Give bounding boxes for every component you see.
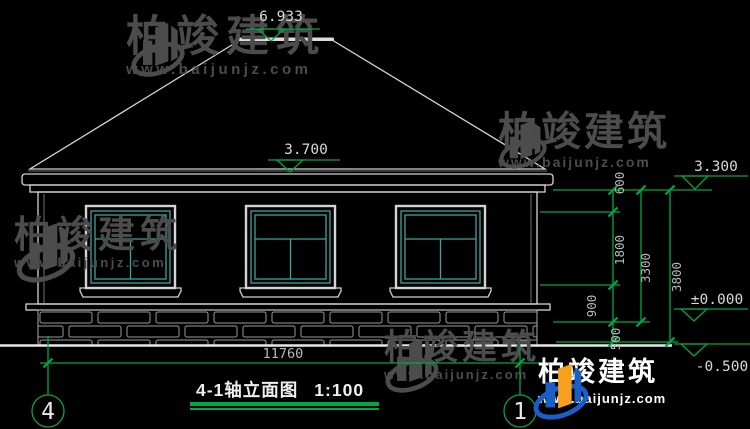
baijun-logo-color-icon (532, 358, 590, 426)
cad-elevation-drawing: 柏竣建筑 www.baijunjz.com 柏竣建筑 www.baijunjz.… (0, 0, 750, 429)
elevation-symbol-ridge (246, 29, 320, 41)
elevation-symbol-eave-top (268, 160, 340, 172)
elevation-value-eave-top: 3.700 (284, 142, 328, 158)
elevation-value-ground: -0.500 (696, 359, 748, 375)
elevation-value-ridge: 6.933 (259, 9, 303, 25)
elevation-value-floor: ±0.000 (691, 292, 743, 308)
elevation-symbol-ground (674, 344, 750, 356)
dim-seg-600: 600 (612, 172, 627, 195)
dimension-chain-lines (40, 190, 670, 363)
axis-number-right: 1 (513, 399, 527, 425)
title-text: 4-1轴立面图 (196, 380, 298, 400)
title-underline-thin (190, 408, 379, 410)
dim-seg-900: 900 (584, 295, 599, 318)
axis-number-left: 4 (41, 399, 55, 425)
dim-total-3800: 3800 (669, 262, 684, 292)
dim-seg-500: 500 (608, 328, 623, 351)
title-underline-thick (190, 402, 379, 406)
elevation-symbol-floor (674, 309, 748, 321)
dimension-ticks (44, 186, 675, 368)
dim-seg-1800: 1800 (612, 235, 627, 265)
brand-logo: 柏竣建筑 www.baijunjz.com (532, 358, 666, 406)
dim-total-width: 11760 (263, 346, 304, 362)
elevation-value-eave: 3.300 (694, 159, 738, 175)
title-scale: 1:100 (314, 380, 364, 400)
drawing-title: 4-1轴立面图1:100 (196, 377, 364, 402)
elevation-symbol-eave (674, 176, 748, 189)
dim-subtotal-3300: 3300 (638, 253, 653, 283)
